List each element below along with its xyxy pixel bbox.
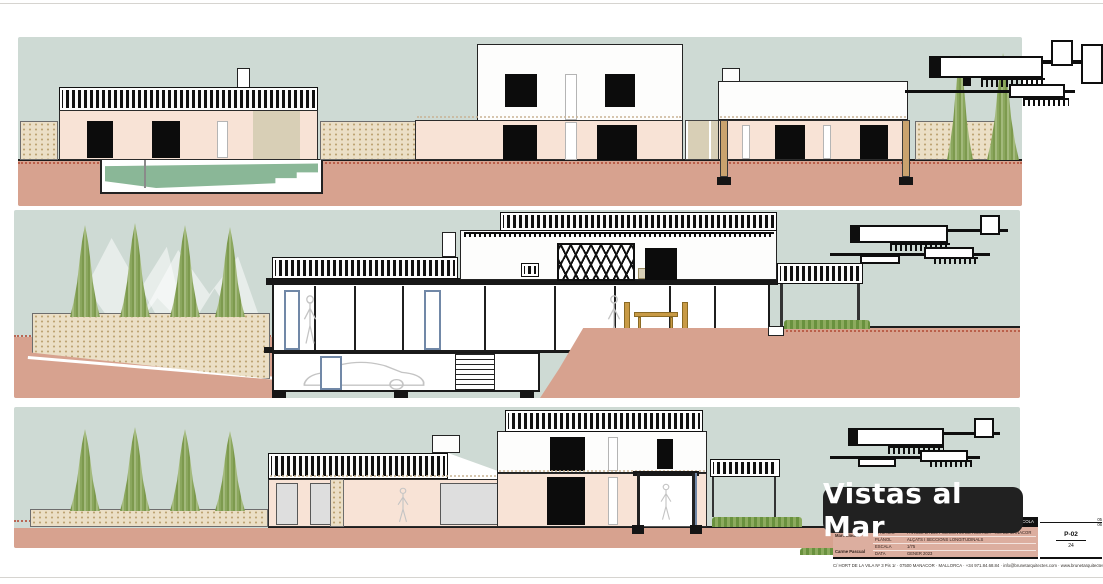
window-slit xyxy=(565,122,577,160)
gate-beam xyxy=(633,471,699,476)
sheet-number-box: P-02 24 xyxy=(1040,527,1102,559)
stone-wall xyxy=(20,121,58,160)
pergola xyxy=(710,459,780,477)
footing xyxy=(520,390,534,398)
badge-label: Vistas al Mar xyxy=(823,477,1023,543)
stone-wall xyxy=(30,509,268,527)
window-opening xyxy=(87,121,113,158)
chimney xyxy=(442,232,456,257)
car-figure xyxy=(299,358,429,390)
glazing-mullion xyxy=(554,286,556,350)
cypress-tree xyxy=(120,427,150,511)
pergola-post xyxy=(712,477,714,517)
cypress-tree xyxy=(215,431,245,511)
louvre-roof xyxy=(272,257,458,279)
pool-ladder xyxy=(144,160,146,188)
person-figure xyxy=(396,487,410,525)
section-panel-middle xyxy=(14,210,1020,398)
louvre-roof xyxy=(59,87,318,111)
glass-door xyxy=(310,483,332,525)
hedge xyxy=(712,517,802,527)
window-slit xyxy=(823,125,831,159)
window-opening xyxy=(605,74,635,107)
stair-section xyxy=(455,354,495,390)
vegetation-scribble xyxy=(417,116,681,118)
chimney xyxy=(237,68,250,89)
interior-door xyxy=(284,290,300,350)
facade xyxy=(415,120,683,160)
door-opening xyxy=(597,125,637,160)
glazing-mullion xyxy=(484,286,486,350)
footing xyxy=(717,177,731,185)
field-value: 1/75 xyxy=(907,544,915,549)
porch-recess xyxy=(253,111,300,159)
window-slit xyxy=(565,74,577,120)
section-cut-line xyxy=(695,473,697,527)
glass-door xyxy=(276,483,298,525)
level-line xyxy=(774,330,1020,332)
window-slit xyxy=(742,125,750,159)
pergola xyxy=(777,263,863,284)
pergola-post xyxy=(774,477,776,517)
parapet-step xyxy=(722,68,740,82)
footing xyxy=(394,390,408,398)
louvre-roof xyxy=(505,410,703,432)
sheet-code: 24 xyxy=(1040,543,1102,549)
ground xyxy=(540,328,1020,398)
vegetation-scribble xyxy=(270,475,520,477)
window-slit xyxy=(608,477,618,525)
x-brace-panel xyxy=(557,243,635,281)
beam-ticks xyxy=(464,232,774,237)
sheet-code: P-02 xyxy=(1040,531,1102,538)
parapet xyxy=(718,81,908,120)
glazing-mullion xyxy=(402,286,404,350)
window-opening xyxy=(645,248,677,280)
top-frame-line xyxy=(0,3,1103,4)
window-opening xyxy=(152,121,180,158)
door-opening xyxy=(547,477,585,525)
door-opening xyxy=(860,125,888,159)
door-opening xyxy=(775,125,805,159)
window-opening xyxy=(550,437,585,471)
upper-volume xyxy=(497,431,707,473)
stone-wall xyxy=(320,121,418,160)
person-figure xyxy=(659,483,673,523)
cypress-tree xyxy=(170,429,200,511)
field-value: GENER 2023 xyxy=(907,551,932,556)
door-opening xyxy=(503,125,537,160)
field-label: DATA xyxy=(875,551,886,556)
author-name: Carme Pascual xyxy=(835,549,865,554)
window-slit xyxy=(608,437,618,471)
footing xyxy=(632,525,644,534)
pillar xyxy=(902,120,910,177)
stone-pilaster xyxy=(330,479,344,527)
cypress-tree xyxy=(70,429,100,511)
parapet-step xyxy=(432,435,460,453)
basement-door xyxy=(320,356,342,390)
louvre-roof xyxy=(500,212,777,231)
glazing-mullion xyxy=(354,286,356,350)
window-opening xyxy=(505,74,537,107)
gate-post xyxy=(637,473,640,527)
bottom-frame-line xyxy=(0,577,1103,578)
pool-basin-section xyxy=(100,160,323,194)
field-label: ESCALA xyxy=(875,544,892,549)
door-opening xyxy=(217,121,228,158)
pool-water xyxy=(105,163,318,189)
elevation-panel-top xyxy=(18,37,1022,206)
footing xyxy=(690,525,702,534)
studio-contact-line: C/ HORT DE LA VILA Nº 3 Pis 1r · 07500 M… xyxy=(833,563,1103,568)
footing xyxy=(899,177,913,185)
mini-section-schematic xyxy=(830,215,1020,265)
architectural-sheet: Vistas al Mar ... I EXPLOTACIÓ AGRÍCOLA … xyxy=(0,0,1103,584)
pergola-post xyxy=(780,284,783,330)
glass-door xyxy=(440,483,500,525)
retaining-step xyxy=(768,326,784,336)
footing xyxy=(272,390,286,398)
hedge xyxy=(784,320,870,329)
interior-door xyxy=(424,290,441,350)
mini-section-schematic xyxy=(905,40,1103,106)
mini-section-schematic xyxy=(830,418,1010,470)
chair xyxy=(624,302,630,332)
window-opening xyxy=(657,439,673,469)
vegetation-scribble xyxy=(720,116,906,118)
chair xyxy=(682,302,688,332)
louvre-panel xyxy=(521,263,539,277)
person-figure xyxy=(302,294,318,348)
pillar xyxy=(720,120,728,177)
listing-badge: Vistas al Mar xyxy=(823,487,1023,533)
